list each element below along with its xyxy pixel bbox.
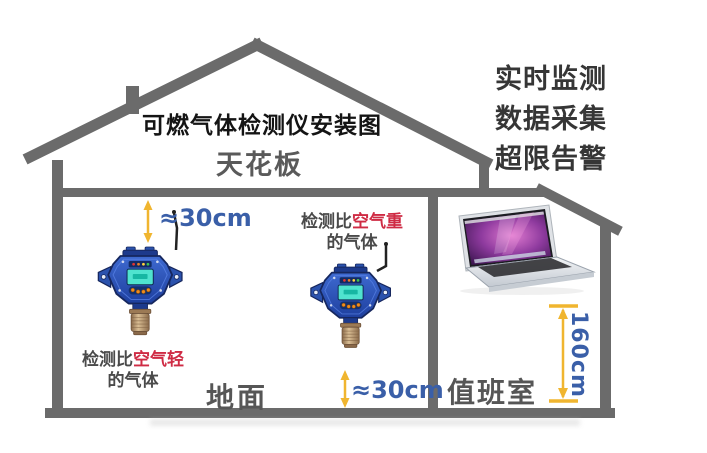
gas-detector-icon <box>311 264 391 347</box>
chimney <box>126 86 139 114</box>
ceiling-line <box>52 188 544 197</box>
floor-gap-measurement: ≈30cm <box>351 376 444 404</box>
lower-gas-detector <box>311 242 391 347</box>
roof-left-slope <box>30 45 257 157</box>
floor-label: 地面 <box>206 376 268 416</box>
light-gas-suffix: 的气体 <box>74 371 192 392</box>
floor-shadow <box>150 419 580 426</box>
light-gas-annotation: 检测比空气轻 的气体 <box>74 350 192 392</box>
floor-gap-arrow <box>341 370 350 408</box>
feature-list: 实时监测 数据采集 超限告警 <box>495 60 630 180</box>
ceiling-gap-arrow <box>144 200 153 243</box>
laptop-height-measurement: 160cm <box>566 311 591 398</box>
heavy-gas-prefix: 检测比 <box>301 212 352 232</box>
diagram-title: 可燃气体检测仪安装图 <box>142 106 382 140</box>
gas-detector-icon <box>98 247 182 335</box>
feature-realtime-monitoring: 实时监测 <box>495 60 630 100</box>
duty-room-label: 值班室 <box>447 371 537 411</box>
feature-overlimit-alarm: 超限告警 <box>495 140 630 180</box>
feature-data-collection: 数据采集 <box>495 100 630 140</box>
left-wall <box>52 160 63 415</box>
installation-diagram: 可燃气体检测仪安装图 天花板 实时监测 数据采集 超限告警 ≈30cm ≈30c… <box>0 0 707 453</box>
light-gas-highlight: 空气轻 <box>133 350 184 370</box>
right-wall <box>600 222 611 416</box>
ceiling-gap-measurement: ≈30cm <box>159 204 252 232</box>
heavy-gas-annotation: 检测比空气重 的气体 <box>294 212 410 254</box>
monitoring-laptop <box>459 205 594 295</box>
heavy-gas-suffix: 的气体 <box>294 233 410 254</box>
ceiling-label: 天花板 <box>202 143 317 182</box>
heavy-gas-highlight: 空气重 <box>352 212 403 232</box>
light-gas-prefix: 检测比 <box>82 350 133 370</box>
